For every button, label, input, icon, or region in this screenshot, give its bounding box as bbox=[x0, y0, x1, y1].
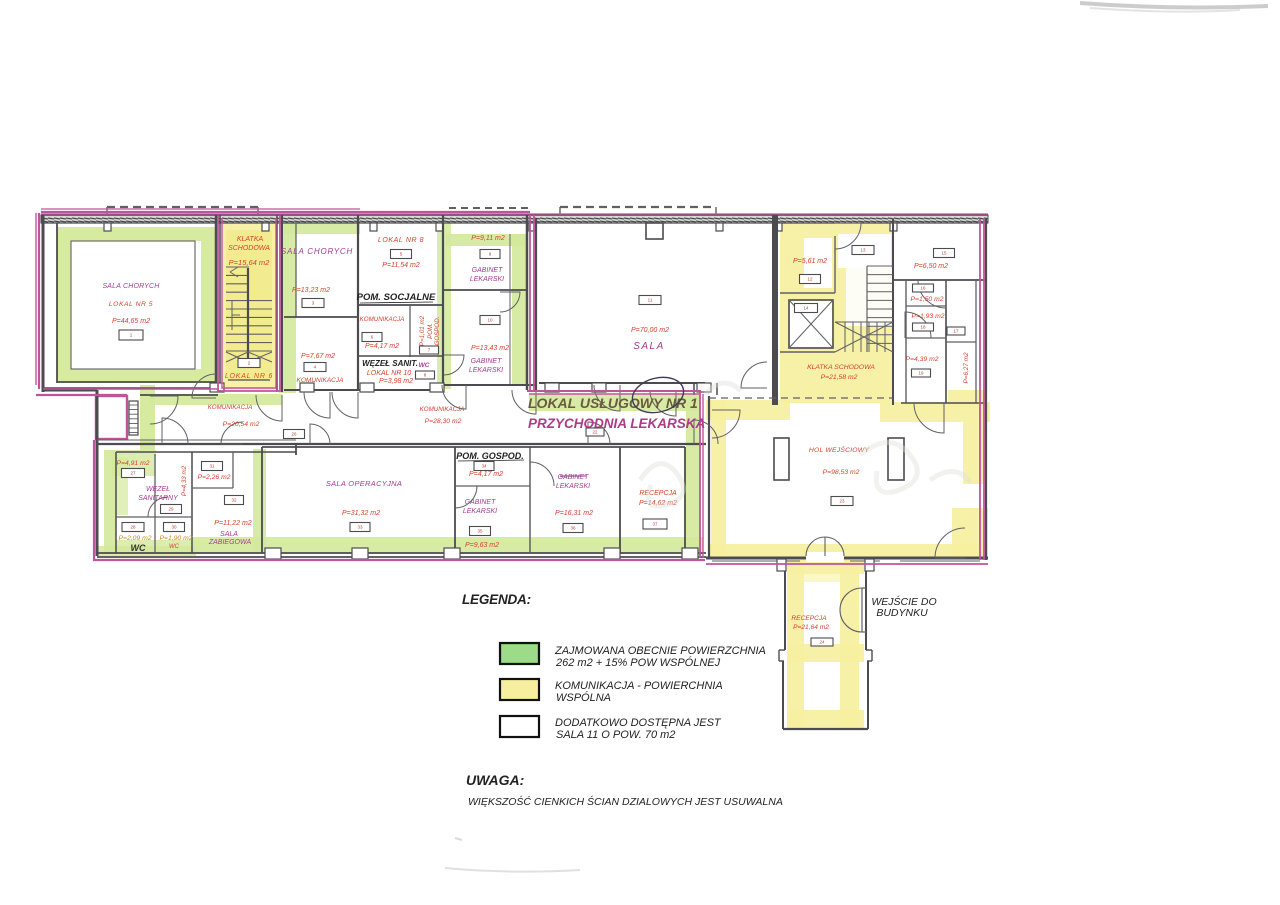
svg-text:WSPÓLNA: WSPÓLNA bbox=[556, 691, 611, 704]
svg-text:LOKAL NR 8: LOKAL NR 8 bbox=[378, 237, 424, 244]
svg-text:KOMUNIKACJA: KOMUNIKACJA bbox=[208, 404, 253, 411]
svg-text:27: 27 bbox=[130, 471, 136, 476]
svg-text:BUDYNKU: BUDYNKU bbox=[876, 607, 928, 619]
svg-text:P=1,90 m2: P=1,90 m2 bbox=[159, 535, 192, 542]
svg-text:LOKAL NR 5: LOKAL NR 5 bbox=[109, 301, 153, 308]
svg-text:DODATKOWO DOSTĘPNA JEST: DODATKOWO DOSTĘPNA JEST bbox=[555, 717, 722, 729]
svg-text:31: 31 bbox=[209, 464, 215, 469]
svg-text:P=9,63 m2: P=9,63 m2 bbox=[465, 542, 499, 549]
svg-text:33: 33 bbox=[357, 525, 363, 530]
svg-text:SALA OPERACYJNA: SALA OPERACYJNA bbox=[326, 479, 402, 488]
svg-text:WĘZEŁ SANIT.: WĘZEŁ SANIT. bbox=[362, 359, 418, 368]
svg-text:POM. SOCJALNE: POM. SOCJALNE bbox=[357, 292, 436, 303]
svg-text:LEKARSKI: LEKARSKI bbox=[470, 276, 504, 283]
svg-text:30: 30 bbox=[171, 525, 177, 530]
svg-text:P=5,61 m2: P=5,61 m2 bbox=[793, 258, 827, 265]
svg-text:KOMUNIKACJA: KOMUNIKACJA bbox=[420, 406, 465, 413]
svg-text:RECEPCJA: RECEPCJA bbox=[639, 490, 677, 497]
svg-text:GOSPOD.: GOSPOD. bbox=[434, 317, 441, 346]
svg-text:13: 13 bbox=[860, 248, 866, 253]
svg-text:P=21,58 m2: P=21,58 m2 bbox=[821, 374, 858, 381]
svg-text:ZABIEGOWA: ZABIEGOWA bbox=[208, 539, 252, 546]
svg-text:SALA: SALA bbox=[633, 341, 665, 352]
svg-text:P=2,09 m2: P=2,09 m2 bbox=[118, 535, 151, 542]
svg-text:36: 36 bbox=[570, 526, 576, 531]
svg-text:WC: WC bbox=[131, 543, 146, 553]
svg-text:POM. GOSPOD.: POM. GOSPOD. bbox=[456, 451, 524, 461]
svg-text:SCHODOWA: SCHODOWA bbox=[228, 245, 270, 252]
svg-text:12: 12 bbox=[807, 277, 813, 282]
svg-text:LOKAL NR 10: LOKAL NR 10 bbox=[367, 370, 411, 377]
svg-text:32: 32 bbox=[231, 498, 237, 503]
svg-text:P=6,27 m2: P=6,27 m2 bbox=[963, 352, 970, 384]
svg-text:P=4,91 m2: P=4,91 m2 bbox=[116, 460, 149, 467]
svg-text:P=1,01 m2: P=1,01 m2 bbox=[419, 315, 426, 346]
svg-text:P=21,64 m2: P=21,64 m2 bbox=[793, 624, 829, 631]
svg-text:17: 17 bbox=[953, 329, 959, 334]
svg-text:KOMUNIKACJA: KOMUNIKACJA bbox=[360, 316, 405, 323]
svg-text:15: 15 bbox=[941, 251, 947, 256]
svg-text:262 m2 + 15% POW WSPÓLNEJ: 262 m2 + 15% POW WSPÓLNEJ bbox=[555, 656, 721, 669]
svg-text:LEKARSKI: LEKARSKI bbox=[556, 483, 590, 490]
svg-text:RECEPCJA: RECEPCJA bbox=[791, 615, 827, 622]
svg-text:ZAJMOWANA OBECNIE POWIERZCHNIA: ZAJMOWANA OBECNIE POWIERZCHNIA bbox=[554, 645, 766, 657]
svg-text:LEKARSKI: LEKARSKI bbox=[463, 508, 497, 515]
svg-text:SALA CHORYCH: SALA CHORYCH bbox=[102, 283, 160, 290]
svg-text:34: 34 bbox=[481, 464, 487, 469]
svg-text:LOKAL USŁUGOWY NR 1: LOKAL USŁUGOWY NR 1 bbox=[528, 395, 698, 411]
svg-text:SALA CHORYCH: SALA CHORYCH bbox=[281, 247, 353, 256]
svg-text:P=6,50 m2: P=6,50 m2 bbox=[914, 263, 948, 270]
svg-text:SANITARNY: SANITARNY bbox=[138, 495, 179, 502]
svg-text:P=9,11 m2: P=9,11 m2 bbox=[471, 235, 505, 242]
svg-text:23: 23 bbox=[839, 499, 845, 504]
svg-text:KLATKA SCHODOWA: KLATKA SCHODOWA bbox=[807, 364, 875, 371]
svg-text:P=98,53 m2: P=98,53 m2 bbox=[823, 469, 860, 476]
svg-text:P=70,00 m2: P=70,00 m2 bbox=[631, 327, 669, 334]
svg-text:LOKAL NR 6: LOKAL NR 6 bbox=[225, 373, 273, 380]
svg-text:SALA 11 O POW. 70 m2: SALA 11 O POW. 70 m2 bbox=[556, 729, 675, 741]
svg-text:P=2,26 m2: P=2,26 m2 bbox=[197, 474, 230, 481]
svg-text:P=11,54 m2: P=11,54 m2 bbox=[382, 262, 420, 269]
svg-text:LEGENDA:: LEGENDA: bbox=[462, 592, 531, 607]
svg-text:SALA: SALA bbox=[220, 531, 238, 538]
svg-text:35: 35 bbox=[477, 529, 483, 534]
svg-text:GABINET: GABINET bbox=[472, 267, 503, 274]
svg-text:WĘZEŁ: WĘZEŁ bbox=[146, 486, 170, 493]
svg-text:GABINET: GABINET bbox=[471, 358, 502, 365]
svg-text:P=11,22 m2: P=11,22 m2 bbox=[214, 520, 252, 527]
svg-text:28: 28 bbox=[130, 525, 136, 530]
svg-text:P=1,93 m2: P=1,93 m2 bbox=[911, 313, 944, 320]
svg-text:P=16,31 m2: P=16,31 m2 bbox=[555, 510, 593, 517]
svg-text:P=1,50 m2: P=1,50 m2 bbox=[910, 296, 943, 303]
svg-text:WIĘKSZOŚĆ CIENKICH ŚCIAN DZIAL: WIĘKSZOŚĆ CIENKICH ŚCIAN DZIALOWYCH JEST… bbox=[468, 795, 783, 808]
svg-text:19: 19 bbox=[918, 371, 924, 376]
svg-text:24: 24 bbox=[819, 640, 825, 645]
svg-text:LEKARSKI: LEKARSKI bbox=[469, 367, 503, 374]
svg-text:P=31,32 m2: P=31,32 m2 bbox=[342, 510, 380, 517]
svg-text:P=20,54 m2: P=20,54 m2 bbox=[223, 421, 260, 428]
svg-text:18: 18 bbox=[920, 325, 926, 330]
svg-text:UWAGA:: UWAGA: bbox=[466, 772, 524, 788]
svg-text:37: 37 bbox=[652, 522, 658, 527]
svg-text:WC: WC bbox=[419, 362, 430, 369]
svg-text:P=4,39 m2: P=4,39 m2 bbox=[905, 356, 938, 363]
svg-text:PRZYCHODNIA LEKARSKA: PRZYCHODNIA LEKARSKA bbox=[528, 416, 705, 431]
svg-text:22: 22 bbox=[592, 430, 598, 435]
svg-text:P=44,65 m2: P=44,65 m2 bbox=[112, 318, 150, 325]
svg-text:WC: WC bbox=[169, 544, 180, 550]
svg-text:P=13,43 m2: P=13,43 m2 bbox=[471, 345, 509, 352]
svg-text:11: 11 bbox=[648, 298, 653, 303]
svg-text:P=4,17 m2: P=4,17 m2 bbox=[469, 471, 503, 478]
svg-text:POM.: POM. bbox=[427, 323, 434, 339]
svg-text:P=3,98 m2: P=3,98 m2 bbox=[379, 378, 413, 385]
svg-text:KLATKA: KLATKA bbox=[237, 236, 264, 243]
svg-text:P=28,30 m2: P=28,30 m2 bbox=[425, 418, 462, 425]
svg-text:KOMUNIKACJA: KOMUNIKACJA bbox=[297, 377, 344, 384]
svg-text:KOMUNIKACJA - POWIERCHNIA: KOMUNIKACJA - POWIERCHNIA bbox=[555, 680, 723, 692]
svg-text:GABINET: GABINET bbox=[558, 474, 589, 481]
svg-text:P=13,23 m2: P=13,23 m2 bbox=[292, 287, 330, 294]
svg-text:26: 26 bbox=[291, 432, 297, 437]
svg-text:10: 10 bbox=[487, 318, 493, 323]
svg-text:P=4,17 m2: P=4,17 m2 bbox=[365, 343, 399, 350]
svg-text:P=15,64 m2: P=15,64 m2 bbox=[229, 258, 270, 267]
svg-text:14: 14 bbox=[803, 306, 809, 311]
svg-text:16: 16 bbox=[920, 286, 926, 291]
svg-text:P=7,67 m2: P=7,67 m2 bbox=[301, 353, 335, 360]
svg-text:GABINET: GABINET bbox=[465, 499, 496, 506]
svg-text:29: 29 bbox=[168, 507, 174, 512]
svg-text:P=4,33 m2: P=4,33 m2 bbox=[181, 465, 188, 496]
